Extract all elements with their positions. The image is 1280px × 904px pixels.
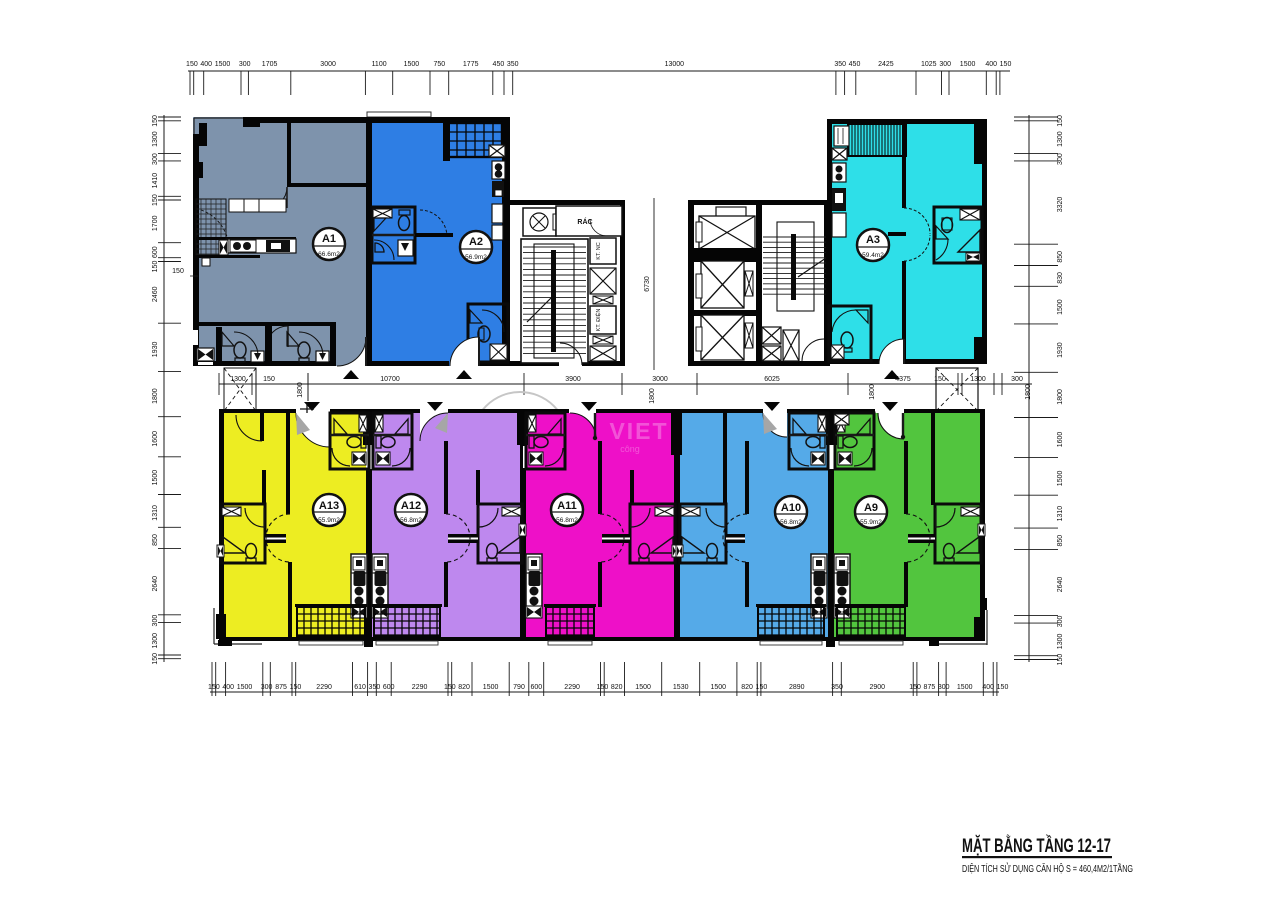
svg-text:56.8m2: 56.8m2: [400, 517, 422, 524]
svg-text:600: 600: [383, 684, 395, 691]
svg-text:150: 150: [263, 376, 275, 383]
svg-text:A13: A13: [319, 500, 339, 512]
svg-text:150: 150: [444, 684, 456, 691]
svg-text:150: 150: [172, 268, 184, 275]
svg-text:1500: 1500: [957, 684, 973, 691]
svg-text:300: 300: [239, 61, 251, 68]
svg-text:1500: 1500: [635, 684, 651, 691]
svg-text:820: 820: [741, 684, 753, 691]
svg-text:1500: 1500: [711, 684, 727, 691]
svg-text:150: 150: [152, 115, 159, 127]
svg-text:2425: 2425: [878, 61, 894, 68]
svg-text:150: 150: [290, 684, 302, 691]
svg-text:A3: A3: [866, 234, 880, 246]
svg-text:600: 600: [530, 684, 542, 691]
svg-text:1930: 1930: [152, 342, 159, 358]
svg-text:2890: 2890: [789, 684, 805, 691]
svg-text:300: 300: [1057, 153, 1064, 165]
svg-text:A2: A2: [469, 236, 483, 248]
svg-text:3900: 3900: [565, 376, 581, 383]
svg-text:1800: 1800: [1057, 389, 1064, 405]
svg-text:1410: 1410: [152, 173, 159, 189]
svg-text:KT. NC: KT. NC: [596, 242, 602, 259]
svg-text:10700: 10700: [380, 376, 400, 383]
svg-text:3320: 3320: [1057, 197, 1064, 213]
svg-text:400: 400: [222, 684, 234, 691]
svg-text:KT. ĐIỆN: KT. ĐIỆN: [594, 309, 602, 332]
svg-text:A11: A11: [557, 500, 577, 512]
svg-text:300: 300: [152, 615, 159, 627]
svg-text:1530: 1530: [673, 684, 689, 691]
svg-text:300: 300: [1057, 615, 1064, 627]
svg-text:1600: 1600: [152, 431, 159, 447]
svg-text:1300: 1300: [1057, 634, 1064, 650]
svg-text:A1: A1: [322, 233, 336, 245]
svg-text:300: 300: [152, 153, 159, 165]
svg-text:1705: 1705: [262, 61, 278, 68]
svg-text:350: 350: [507, 61, 519, 68]
svg-text:150: 150: [756, 684, 768, 691]
svg-text:350: 350: [369, 684, 381, 691]
svg-text:150: 150: [909, 684, 921, 691]
svg-text:1100: 1100: [372, 61, 387, 68]
svg-text:150: 150: [152, 194, 159, 206]
svg-text:VIET: VIET: [609, 418, 668, 444]
svg-text:400: 400: [985, 61, 997, 68]
svg-text:1700: 1700: [152, 215, 159, 231]
svg-text:56.8m2: 56.8m2: [556, 517, 578, 524]
svg-text:300: 300: [939, 61, 951, 68]
svg-text:3000: 3000: [320, 61, 336, 68]
svg-text:400: 400: [982, 684, 994, 691]
svg-text:1310: 1310: [152, 505, 159, 521]
svg-text:150: 150: [1000, 61, 1012, 68]
svg-text:1800: 1800: [297, 382, 304, 398]
svg-text:850: 850: [1057, 251, 1064, 263]
svg-text:150: 150: [152, 653, 159, 665]
svg-text:1800: 1800: [869, 384, 876, 400]
svg-text:750: 750: [433, 61, 445, 68]
svg-text:820: 820: [458, 684, 470, 691]
svg-text:A10: A10: [781, 502, 801, 514]
svg-text:6025: 6025: [764, 376, 780, 383]
svg-text:DIỆN TÍCH SỬ DỤNG CĂN HỘ S = 4: DIỆN TÍCH SỬ DỤNG CĂN HỘ S = 460,4M2/1TẦ…: [962, 862, 1133, 875]
svg-text:56.9m2: 56.9m2: [465, 254, 487, 261]
svg-text:1500: 1500: [1057, 299, 1064, 315]
svg-text:300: 300: [261, 684, 273, 691]
svg-text:350: 350: [834, 61, 846, 68]
svg-text:1025: 1025: [921, 61, 937, 68]
svg-text:300: 300: [938, 684, 950, 691]
svg-text:300: 300: [1011, 376, 1023, 383]
svg-text:1300: 1300: [152, 131, 159, 147]
svg-text:400: 400: [200, 61, 212, 68]
svg-text:2290: 2290: [316, 684, 332, 691]
svg-text:1930: 1930: [1057, 342, 1064, 358]
svg-text:6730: 6730: [644, 276, 651, 292]
svg-text:450: 450: [849, 61, 861, 68]
svg-text:350: 350: [831, 684, 843, 691]
svg-text:1500: 1500: [960, 61, 976, 68]
svg-text:1500: 1500: [152, 470, 159, 486]
svg-text:150: 150: [1057, 654, 1064, 666]
svg-text:1500: 1500: [237, 684, 253, 691]
svg-text:450: 450: [493, 61, 505, 68]
svg-text:2460: 2460: [152, 286, 159, 302]
svg-text:1800: 1800: [1025, 384, 1032, 400]
svg-text:13000: 13000: [665, 61, 685, 68]
svg-text:55.9m2: 55.9m2: [860, 519, 882, 526]
svg-text:610: 610: [354, 684, 366, 691]
svg-text:850: 850: [152, 534, 159, 546]
svg-text:1500: 1500: [215, 61, 231, 68]
svg-text:150: 150: [597, 684, 609, 691]
svg-text:1310: 1310: [1057, 506, 1064, 522]
svg-text:2900: 2900: [870, 684, 886, 691]
svg-text:1800: 1800: [649, 388, 656, 404]
svg-text:2640: 2640: [1057, 577, 1064, 593]
svg-text:3000: 3000: [652, 376, 668, 383]
svg-text:150: 150: [186, 61, 198, 68]
svg-text:875: 875: [924, 684, 936, 691]
svg-text:56.8m2: 56.8m2: [780, 519, 802, 526]
svg-text:850: 850: [1057, 535, 1064, 547]
svg-text:1500: 1500: [1057, 471, 1064, 487]
svg-text:150: 150: [152, 261, 159, 273]
svg-text:A12: A12: [401, 500, 421, 512]
svg-text:66.6m2: 66.6m2: [318, 251, 340, 258]
svg-text:2290: 2290: [564, 684, 580, 691]
svg-text:1300: 1300: [152, 633, 159, 649]
svg-text:875: 875: [275, 684, 287, 691]
svg-text:1800: 1800: [152, 388, 159, 404]
svg-text:150: 150: [1057, 115, 1064, 127]
svg-text:1300: 1300: [1057, 131, 1064, 147]
svg-text:150: 150: [208, 684, 220, 691]
svg-text:830: 830: [1057, 272, 1064, 284]
svg-text:1600: 1600: [1057, 432, 1064, 448]
svg-text:2290: 2290: [412, 684, 428, 691]
svg-text:2640: 2640: [152, 576, 159, 592]
svg-text:1775: 1775: [463, 61, 479, 68]
svg-text:790: 790: [513, 684, 525, 691]
svg-text:1500: 1500: [483, 684, 499, 691]
svg-text:600: 600: [152, 246, 159, 258]
svg-text:1500: 1500: [404, 61, 420, 68]
svg-text:A9: A9: [864, 502, 878, 514]
svg-text:150: 150: [997, 684, 1009, 691]
svg-text:MẶT BẰNG TẦNG 12-17: MẶT BẰNG TẦNG 12-17: [962, 835, 1111, 857]
svg-text:công: công: [620, 444, 640, 454]
svg-text:55.9m2: 55.9m2: [318, 517, 340, 524]
svg-text:59.4m2: 59.4m2: [862, 252, 884, 259]
svg-text:820: 820: [611, 684, 623, 691]
